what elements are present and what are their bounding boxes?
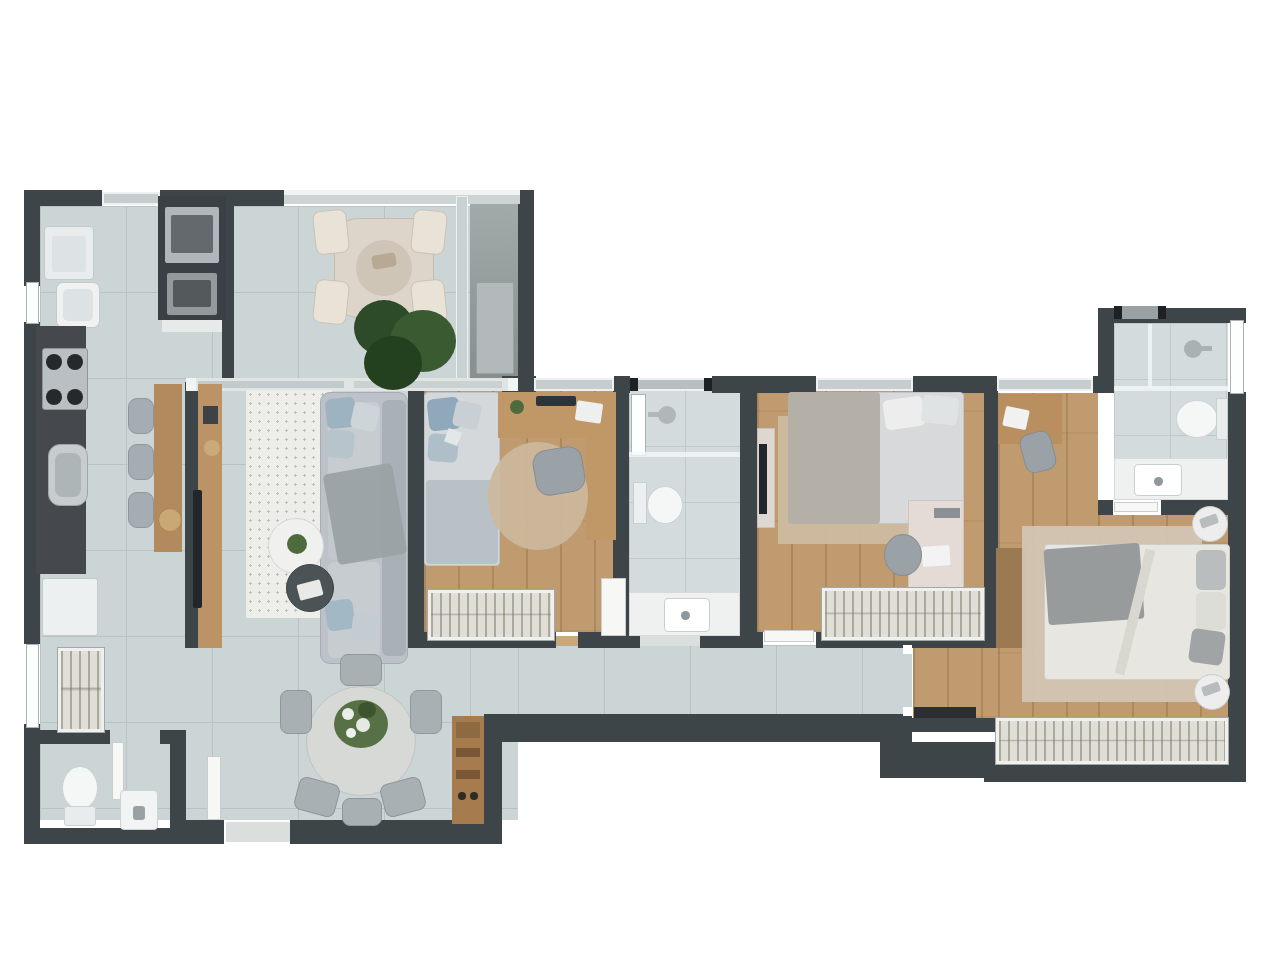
wall-suite-bottom <box>984 764 1246 782</box>
desk2-shelf <box>934 508 960 518</box>
laundry-tank-basin <box>63 289 93 321</box>
wardrobe1 <box>428 590 554 640</box>
entry-door-leaf <box>207 756 221 820</box>
bed2-blanket <box>788 392 880 524</box>
shower-head-2 <box>658 406 676 424</box>
window-ensuite-top-bar <box>1118 306 1162 319</box>
tv2 <box>759 444 767 514</box>
washing-machine-lid <box>52 236 86 272</box>
bed2-pillow-2 <box>921 394 960 426</box>
balcony-chair-3 <box>312 278 350 325</box>
console-frame <box>203 406 218 424</box>
sink3-faucet <box>1154 477 1163 486</box>
sofa-pillow-2 <box>325 429 355 459</box>
desk1-plant <box>510 400 524 414</box>
ensuite-door-leaf <box>1114 502 1158 512</box>
wall-bedstrip-top-e <box>1093 376 1114 393</box>
wall-bedroom2-bottom-stub <box>740 632 763 648</box>
pantry-shelves <box>58 648 104 732</box>
entry-threshold <box>226 822 290 842</box>
lavabo-toilet-bowl <box>62 766 98 810</box>
sofa-pillow-5 <box>351 613 378 641</box>
burner-2 <box>67 354 83 370</box>
window-bath2-shaft <box>631 394 646 456</box>
wall-bath2-right <box>740 390 757 632</box>
shower-glass-2 <box>629 452 740 457</box>
floor-plan-canvas <box>0 0 1280 960</box>
laptop1 <box>575 400 604 423</box>
console-clock <box>204 440 220 456</box>
burner-3 <box>46 389 62 405</box>
window-kitchen-top <box>102 192 160 205</box>
toilet2-tank <box>633 482 647 524</box>
wall-lavabo-bottom <box>24 828 186 844</box>
sliding-door-cap-b <box>508 378 518 391</box>
window-bath2-cap-l <box>630 378 638 391</box>
balcony-chair-2 <box>410 208 448 255</box>
bedroom2-door-leaf <box>764 630 814 642</box>
burner-4 <box>67 389 83 405</box>
bed1-pillow-3 <box>452 400 483 431</box>
master-pillow-3 <box>1188 628 1226 666</box>
balcony-rail-glass <box>284 195 520 204</box>
bar-stool-1 <box>128 398 154 434</box>
lavabo-toilet-tank <box>64 806 96 826</box>
shower-arm-3 <box>1198 346 1212 351</box>
window-ensuite-cap-l <box>1114 306 1122 319</box>
sliding-door-cap-a <box>186 378 196 391</box>
balcony-cabinet <box>476 282 514 374</box>
round-stool <box>158 508 182 532</box>
flower-2 <box>356 718 370 732</box>
wall-corridor-bottom <box>502 714 912 742</box>
window-bedroom2 <box>816 378 913 391</box>
desk2-chair <box>884 534 922 576</box>
master-pillow-1 <box>1196 550 1226 590</box>
fridge <box>42 578 98 636</box>
window-suite <box>997 378 1093 391</box>
wall-lavabo-top-a <box>40 730 110 744</box>
wardrobe2 <box>822 588 984 640</box>
wall-ensuite-bottom-a <box>1098 500 1113 515</box>
suite-door-frame-a <box>903 645 912 654</box>
master-closet <box>996 718 1228 764</box>
wall-lavabo-right <box>170 742 186 838</box>
dining-chair-tr <box>410 690 442 734</box>
wine-bottle-1 <box>458 792 466 800</box>
wall-bottom-a <box>186 820 224 844</box>
bath2-door-leaf <box>601 578 626 636</box>
lavabo-faucet <box>133 806 145 820</box>
wall-block-right <box>518 190 534 390</box>
wall-entry-bottom <box>912 718 998 732</box>
wall-right-b <box>1228 392 1246 782</box>
bar-stool-2 <box>128 444 154 480</box>
bedroom1-threshold <box>556 636 578 646</box>
tv <box>193 490 202 608</box>
burner-1 <box>46 354 62 370</box>
dining-chair-top <box>340 654 382 686</box>
wall-left-a <box>24 190 40 286</box>
wall-bedroom1-left <box>408 390 424 648</box>
bar-cabinet-top <box>456 722 480 738</box>
monitor1 <box>536 396 576 406</box>
window-ensuite-cap-r <box>1158 306 1166 319</box>
window-service <box>26 282 39 324</box>
dining-chair-bottom <box>342 798 382 826</box>
balcony-chair-1 <box>312 208 350 255</box>
wall-bedstrip-top-c <box>712 376 816 393</box>
sofa-pillow-3 <box>350 402 381 433</box>
wall-lavabo-top-b <box>160 730 186 744</box>
coffee-table-plant <box>287 534 307 554</box>
flower-3 <box>346 728 356 738</box>
desk1-return <box>586 438 616 540</box>
balcony-glass-divider <box>456 196 468 382</box>
laptop2 <box>921 545 950 567</box>
dining-chair-tl <box>280 690 312 734</box>
wall-jut-outer <box>880 742 984 778</box>
plant-bush-c <box>364 336 422 390</box>
wine-bottle-2 <box>470 792 478 800</box>
window-pantry <box>26 644 39 728</box>
toilet3-tank <box>1216 398 1228 440</box>
suite-door-frame-b <box>903 707 912 716</box>
suite-door-leaf <box>914 707 976 718</box>
shower-arm-2 <box>648 412 660 417</box>
flower-1 <box>342 708 354 720</box>
wall-left-c <box>24 724 40 844</box>
kitchen-sink-basin <box>55 453 81 497</box>
window-ensuite-right <box>1230 320 1244 394</box>
tower-shelf <box>162 320 222 332</box>
wall-dining-right <box>484 714 502 824</box>
oven-glass <box>171 215 213 253</box>
bath2-threshold <box>640 636 700 646</box>
window-bedroom1 <box>534 378 614 391</box>
centerpiece-dark <box>358 702 376 718</box>
bar-cabinet-shelf-1 <box>456 748 480 757</box>
window-bath2-cap-r <box>704 378 712 391</box>
microwave-glass <box>173 280 211 307</box>
floor-corridor <box>518 645 912 716</box>
bar-stool-3 <box>128 492 154 528</box>
master-pillow-2 <box>1196 592 1226 630</box>
toilet3-bowl <box>1176 400 1218 438</box>
bar-cabinet-shelf-2 <box>456 770 480 779</box>
toilet2-bowl <box>647 486 683 524</box>
sink2-faucet <box>681 611 690 620</box>
window-bath2-top <box>630 378 712 391</box>
shower-glass-3h <box>1114 386 1228 391</box>
shower-glass-3v <box>1148 324 1152 388</box>
bed2-pillow-1 <box>882 395 926 430</box>
